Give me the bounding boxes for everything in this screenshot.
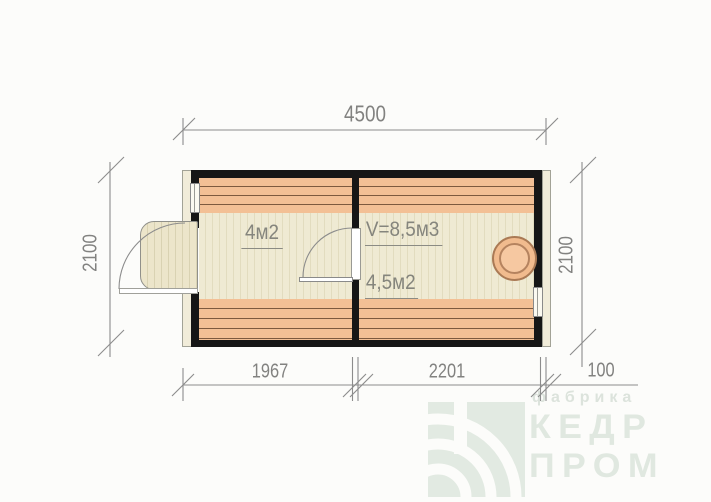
dim-top-width: 4500 xyxy=(344,101,386,128)
dim-bottom-seg2: 2201 xyxy=(429,361,465,384)
entrance-door-arc xyxy=(119,223,185,289)
floor-plan-drawing: фабрика КЕДР ПРОМ xyxy=(0,0,711,502)
partition-door-arc xyxy=(303,228,352,277)
dim-bottom-seg3: 100 xyxy=(587,360,614,383)
dim-bottom-seg1: 1967 xyxy=(252,361,288,384)
dim-left-height: 2100 xyxy=(80,234,103,272)
dimension-linework xyxy=(0,0,711,502)
room2-area-label: 4,5м2 xyxy=(365,271,418,299)
room1-area-label: 4м2 xyxy=(241,221,282,249)
room2-volume-label: V=8,5м3 xyxy=(365,218,442,246)
dim-right-height: 2100 xyxy=(556,236,579,274)
